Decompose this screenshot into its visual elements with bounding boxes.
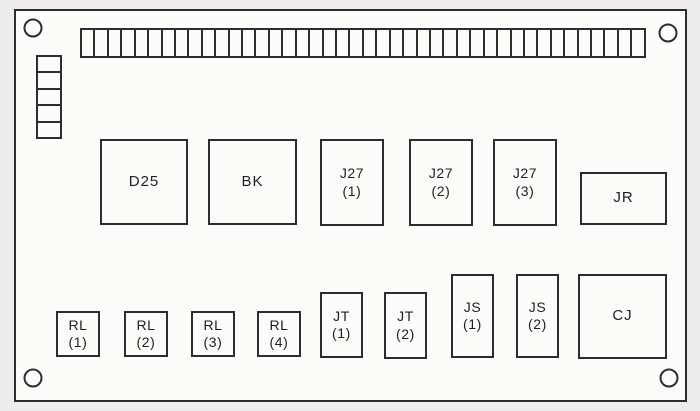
terminal-segment [203, 30, 216, 56]
component-bk: BK [208, 139, 297, 225]
component-label: JS [529, 299, 547, 317]
terminal-segment [283, 30, 296, 56]
terminal-segment [592, 30, 605, 56]
component-label: RL [68, 317, 87, 335]
terminal-segment [82, 30, 95, 56]
terminal-segment [216, 30, 229, 56]
terminal-segment [605, 30, 618, 56]
terminal-segment [297, 30, 310, 56]
component-jt-2: JT(2) [384, 292, 427, 359]
terminal-segment [391, 30, 404, 56]
component-index-label: (2) [137, 334, 156, 352]
component-index-label: (3) [204, 334, 223, 352]
component-j27-1: J27(1) [320, 139, 384, 226]
terminal-segment [512, 30, 525, 56]
terminal-segment [136, 30, 149, 56]
component-index-label: (1) [332, 325, 351, 343]
component-rl-2: RL(2) [124, 311, 168, 357]
terminal-segment [458, 30, 471, 56]
component-cj: CJ [578, 274, 667, 359]
component-js-2: JS(2) [516, 274, 559, 358]
component-j27-3: J27(3) [493, 139, 557, 226]
component-index-label: (2) [396, 326, 415, 344]
component-label: J27 [513, 165, 537, 183]
terminal-segment [122, 30, 135, 56]
scanned-panel-diagram: D25BKJ27(1)J27(2)J27(3)JRRL(1)RL(2)RL(3)… [0, 0, 700, 411]
terminal-segment [256, 30, 269, 56]
component-label: J27 [429, 165, 453, 183]
component-jr: JR [580, 172, 667, 225]
component-jt-1: JT(1) [320, 292, 363, 358]
terminal-segment [337, 30, 350, 56]
component-js-1: JS(1) [451, 274, 494, 358]
terminal-segment [109, 30, 122, 56]
terminal-segment [176, 30, 189, 56]
terminal-segment [404, 30, 417, 56]
terminal-segment [324, 30, 337, 56]
terminal-segment [270, 30, 283, 56]
component-index-label: (2) [528, 316, 547, 334]
component-rl-4: RL(4) [257, 311, 301, 357]
terminal-segment [189, 30, 202, 56]
connector-segment [38, 106, 60, 122]
terminal-segment [485, 30, 498, 56]
component-label: JS [464, 299, 482, 317]
component-label: D25 [129, 173, 160, 192]
terminal-segment [525, 30, 538, 56]
terminal-segment [579, 30, 592, 56]
terminal-strip [80, 28, 646, 58]
terminal-segment [552, 30, 565, 56]
terminal-segment [230, 30, 243, 56]
connector-segment [38, 73, 60, 89]
terminal-segment [565, 30, 578, 56]
component-index-label: (3) [516, 183, 535, 201]
component-j27-2: J27(2) [409, 139, 473, 226]
terminal-segment [538, 30, 551, 56]
connector-segment [38, 90, 60, 106]
terminal-segment [498, 30, 511, 56]
terminal-segment [444, 30, 457, 56]
component-d25: D25 [100, 139, 188, 225]
terminal-segment [95, 30, 108, 56]
terminal-segment [619, 30, 632, 56]
component-label: CJ [612, 307, 632, 326]
mounting-hole-top-right [659, 24, 678, 43]
terminal-segment [149, 30, 162, 56]
terminal-segment [310, 30, 323, 56]
terminal-segment [163, 30, 176, 56]
side-connector-block [36, 55, 62, 139]
connector-segment [38, 57, 60, 73]
mounting-hole-bottom-right [660, 369, 679, 388]
component-rl-1: RL(1) [56, 311, 100, 357]
component-label: J27 [340, 165, 364, 183]
connector-segment [38, 123, 60, 137]
component-index-label: (1) [343, 183, 362, 201]
terminal-segment [350, 30, 363, 56]
component-label: JT [333, 308, 350, 326]
terminal-segment [377, 30, 390, 56]
component-label: BK [241, 173, 263, 192]
component-label: JR [613, 189, 633, 208]
component-index-label: (1) [463, 316, 482, 334]
terminal-segment [418, 30, 431, 56]
terminal-segment [471, 30, 484, 56]
component-label: RL [269, 317, 288, 335]
component-index-label: (2) [432, 183, 451, 201]
terminal-segment [243, 30, 256, 56]
component-rl-3: RL(3) [191, 311, 235, 357]
mounting-hole-top-left [24, 19, 43, 38]
terminal-segment [364, 30, 377, 56]
component-label: JT [397, 308, 414, 326]
component-label: RL [203, 317, 222, 335]
terminal-segment [431, 30, 444, 56]
component-index-label: (1) [69, 334, 88, 352]
component-label: RL [136, 317, 155, 335]
mounting-hole-bottom-left [24, 369, 43, 388]
terminal-segment [632, 30, 643, 56]
component-index-label: (4) [270, 334, 289, 352]
